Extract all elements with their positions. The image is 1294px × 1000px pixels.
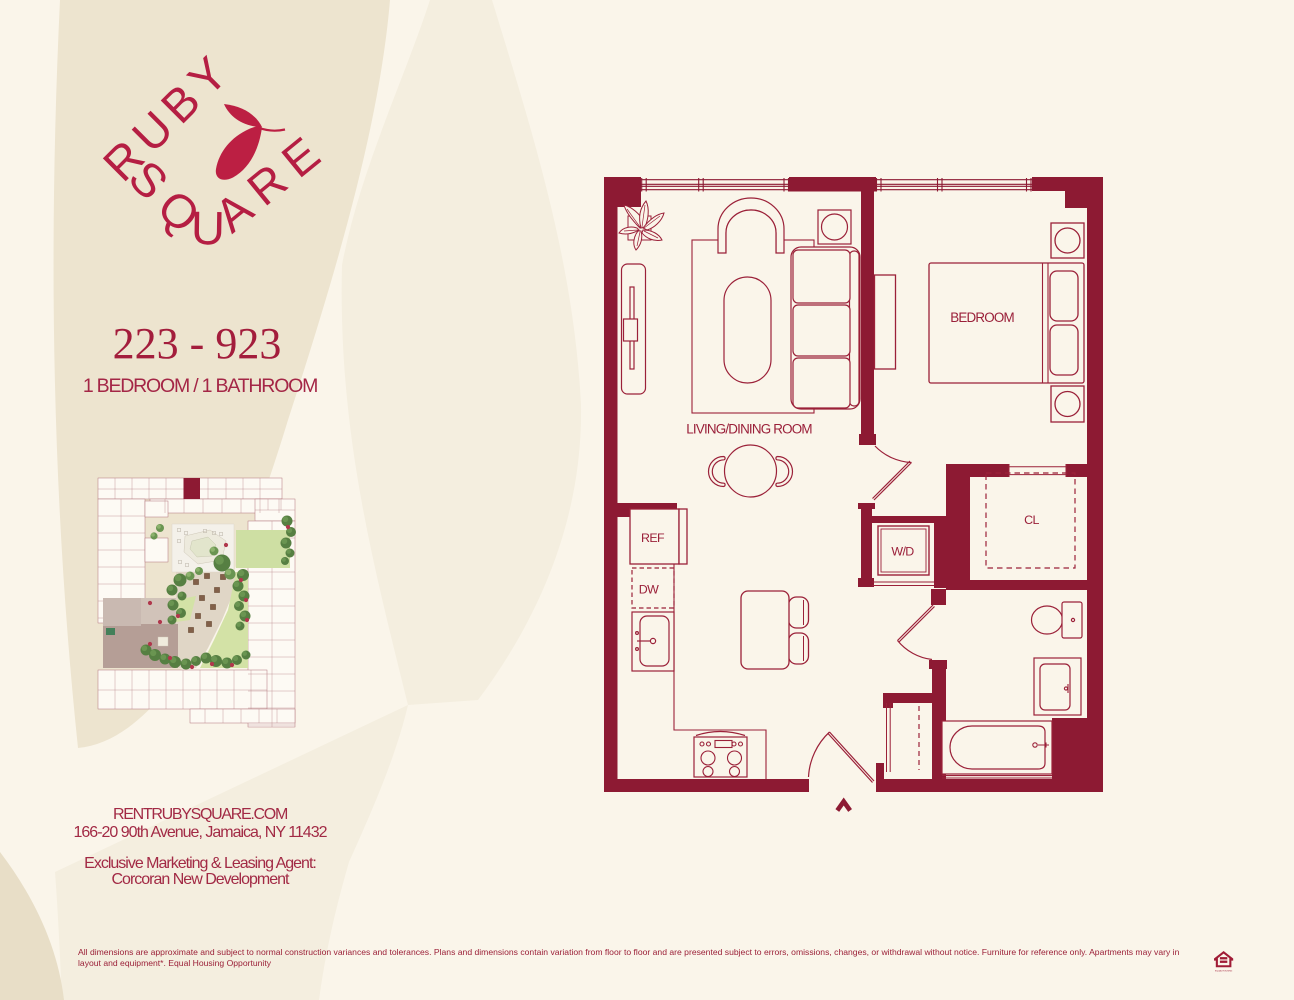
svg-text:layout and equipment*. Equal H: layout and equipment*. Equal Housing Opp… bbox=[78, 958, 272, 968]
svg-text:166-20 90th Avenue, Jamaica, N: 166-20 90th Avenue, Jamaica, NY 11432 bbox=[74, 824, 328, 841]
svg-text:REF: REF bbox=[641, 531, 665, 545]
svg-text:DW: DW bbox=[639, 583, 659, 597]
svg-text:All dimensions are approximate: All dimensions are approximate and subje… bbox=[78, 947, 1180, 957]
svg-text:1 BEDROOM / 1 BATHROOM: 1 BEDROOM / 1 BATHROOM bbox=[83, 375, 317, 397]
svg-text:LIVING/DINING ROOM: LIVING/DINING ROOM bbox=[686, 422, 812, 437]
svg-text:W/D: W/D bbox=[891, 545, 914, 559]
svg-text:223 - 923: 223 - 923 bbox=[113, 319, 282, 368]
svg-text:RENTRUBYSQUARE.COM: RENTRUBYSQUARE.COM bbox=[113, 806, 288, 823]
svg-text:Corcoran New Development: Corcoran New Development bbox=[112, 871, 291, 888]
svg-text:EQUAL HOUSING: EQUAL HOUSING bbox=[1215, 969, 1233, 972]
svg-text:CL: CL bbox=[1024, 513, 1039, 527]
svg-text:Exclusive Marketing & Leasing: Exclusive Marketing & Leasing Agent: bbox=[84, 855, 316, 872]
svg-text:BEDROOM: BEDROOM bbox=[950, 310, 1014, 325]
